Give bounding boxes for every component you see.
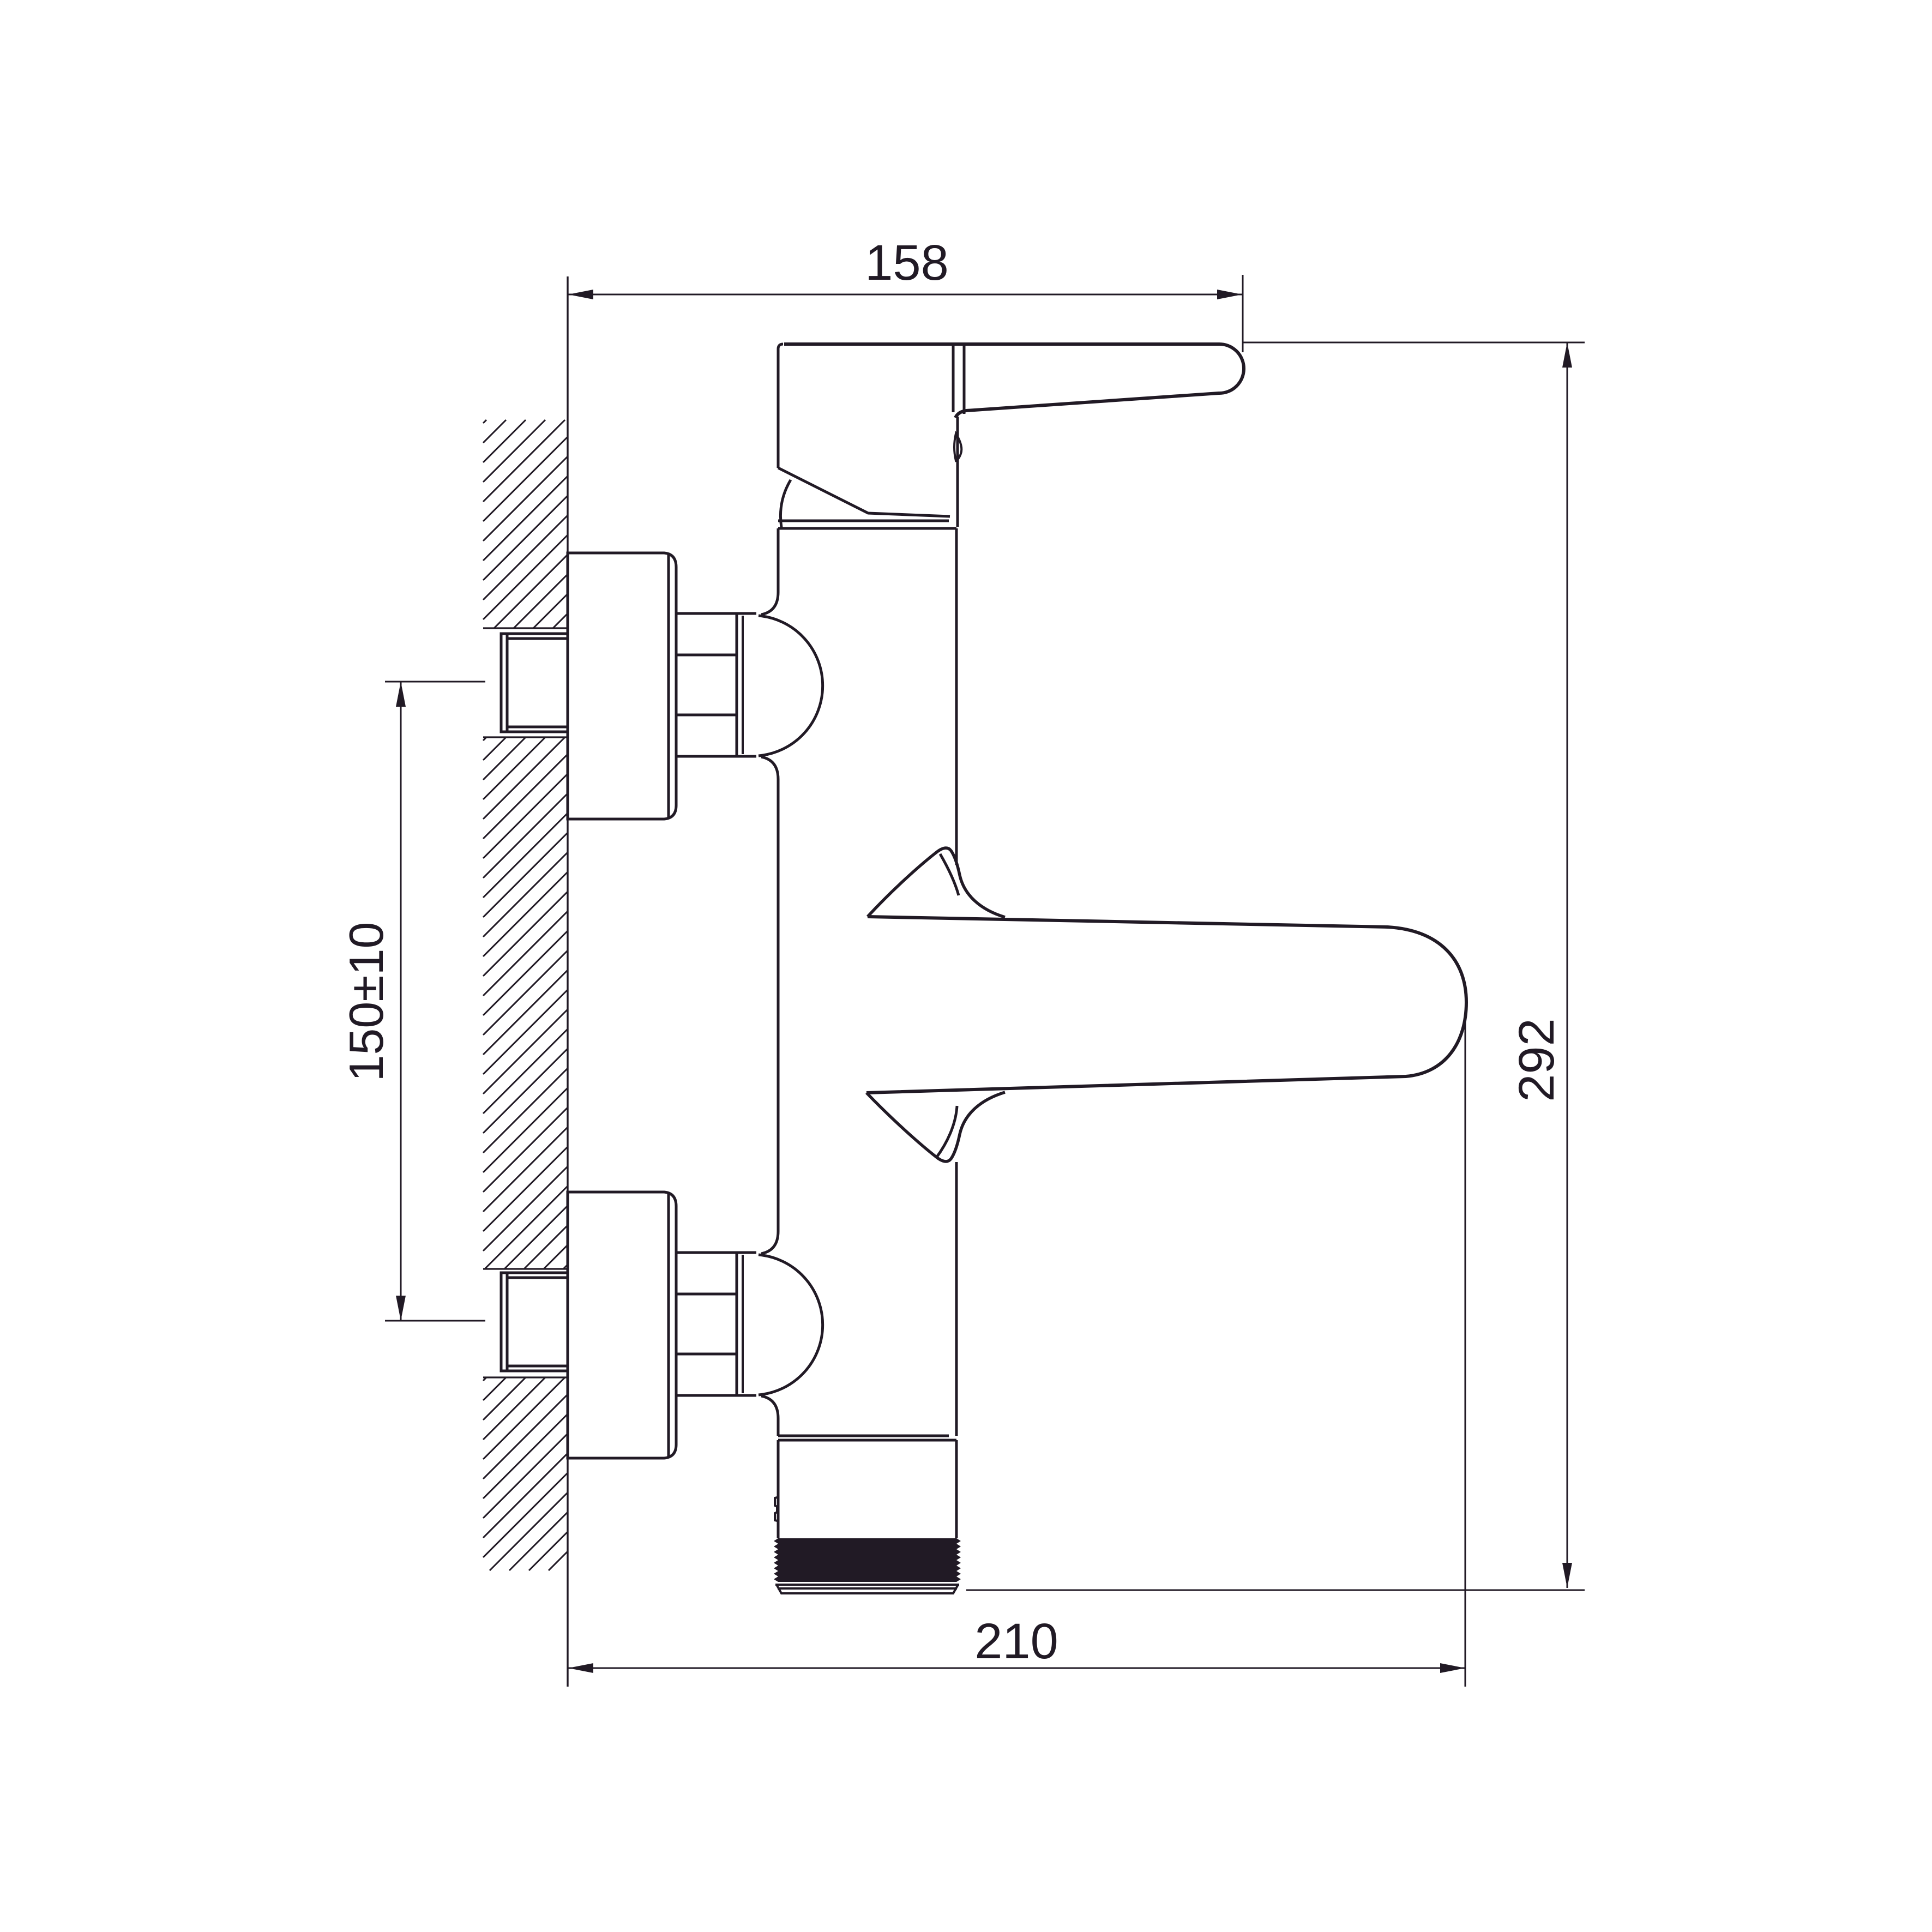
- svg-text:150±10: 150±10: [339, 922, 393, 1081]
- svg-text:210: 210: [974, 1614, 1058, 1669]
- svg-text:158: 158: [865, 235, 949, 291]
- svg-text:292: 292: [1509, 1018, 1564, 1102]
